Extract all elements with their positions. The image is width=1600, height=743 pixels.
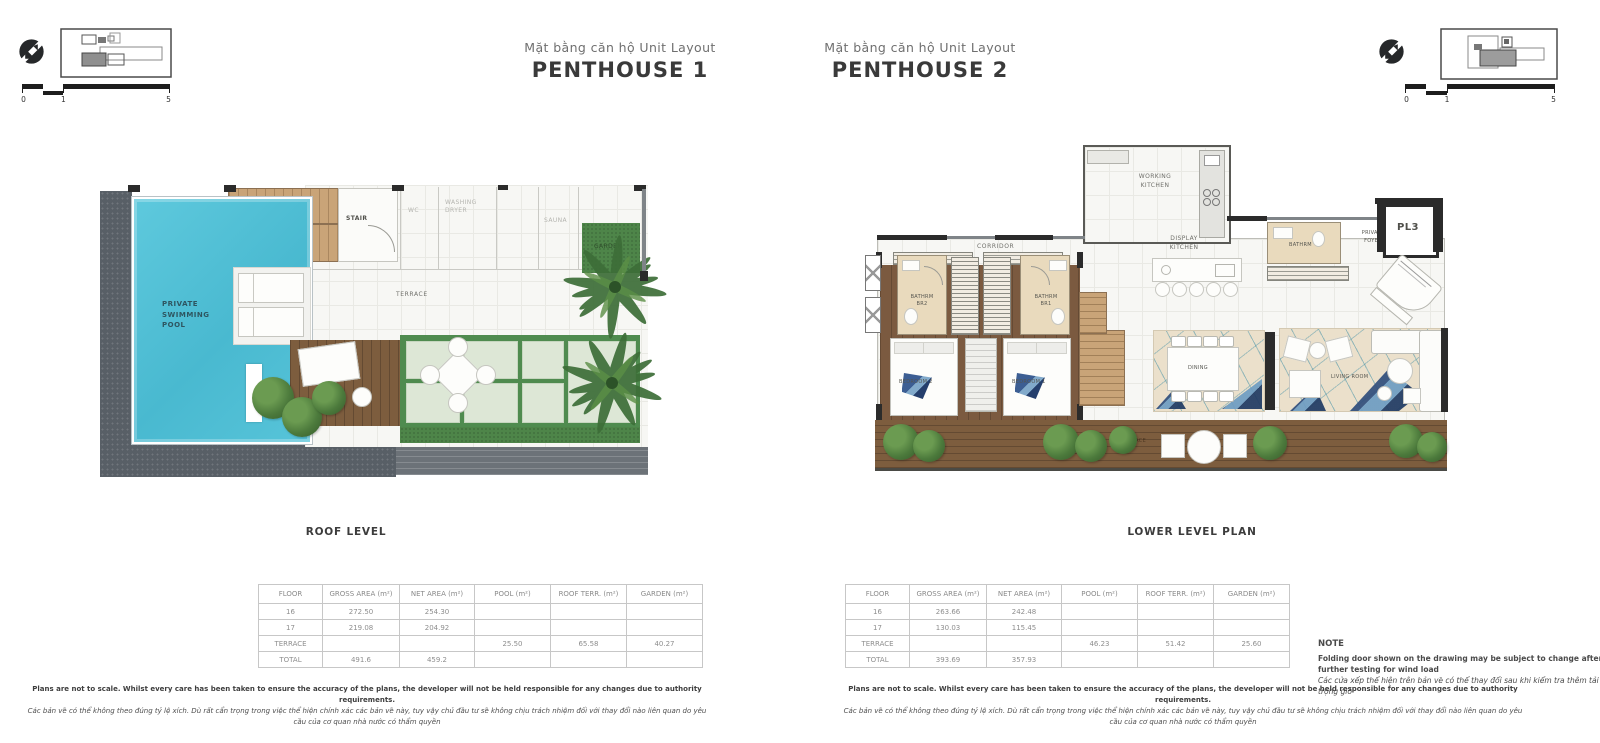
kitchen-sink	[1204, 155, 1220, 166]
deck-stool	[1161, 434, 1185, 458]
north-arrow-icon	[1378, 38, 1405, 65]
scale-label-5: 5	[166, 95, 171, 104]
table-row: 17130.03115.45	[846, 620, 1290, 636]
stove-icon	[1203, 189, 1219, 205]
side-table	[1403, 388, 1421, 404]
sofa	[1419, 330, 1443, 412]
page-title: PENTHOUSE 1	[470, 58, 770, 82]
bush	[312, 381, 346, 415]
bush	[1075, 430, 1107, 462]
bush	[1043, 424, 1079, 460]
column-header: GARDEN (m²)	[1214, 585, 1290, 604]
column-header: NET AREA (m²)	[987, 585, 1062, 604]
plan1-caption: ROOF LEVEL	[236, 526, 456, 538]
bed: BEDROOM 1	[1003, 338, 1071, 416]
bedroom-divider-wardrobe	[965, 338, 997, 412]
table-row: TERRACE25.5065.5840.27	[259, 636, 703, 652]
dining-chair	[1171, 391, 1186, 402]
unit-layout-subtitle: Mặt bằng căn hộ Unit Layout	[470, 40, 770, 55]
stair	[1079, 330, 1125, 406]
table-row: TOTAL491.6459.2	[259, 652, 703, 668]
working-kitchen-label: WORKING KITCHEN	[1133, 172, 1177, 190]
page-title: PENTHOUSE 2	[770, 58, 1070, 82]
penthouse2-area-table: FLOORGROSS AREA (m²)NET AREA (m²)POOL (m…	[845, 584, 1290, 668]
dining-chair	[1219, 336, 1234, 347]
table-row: 17219.08204.92	[259, 620, 703, 636]
wardrobe	[951, 257, 979, 335]
display-kitchen-label: DISPLAY KITCHEN	[1161, 234, 1207, 252]
deck-table	[1187, 430, 1221, 464]
column-header: FLOOR	[846, 585, 910, 604]
tv-wall	[1265, 332, 1275, 410]
scale-label-1: 1	[1445, 95, 1450, 104]
note-text-en: Folding door shown on the drawing may be…	[1318, 654, 1600, 676]
outdoor-chair	[476, 365, 496, 385]
toilet	[904, 308, 918, 325]
coffee-table	[1387, 358, 1413, 384]
penthouse2-floor-plan: WORKING KITCHEN DISPLAY KITCHEN CORRIDOR…	[865, 142, 1450, 472]
key-plan-left	[60, 28, 172, 78]
side-table	[1377, 386, 1392, 401]
sink	[1273, 227, 1293, 239]
dining-chair	[1203, 336, 1218, 347]
column-header: GROSS AREA (m²)	[323, 585, 400, 604]
terrace-label: TERRACE	[396, 291, 428, 298]
note-title: NOTE	[1318, 638, 1600, 650]
key-plan-right	[1440, 28, 1558, 80]
table-row: 16263.66242.48	[846, 604, 1290, 620]
bar-stool	[1189, 282, 1204, 297]
door-swing	[924, 266, 943, 285]
column-header: POOL (m²)	[1062, 585, 1138, 604]
column-header: ROOF TERR. (m²)	[1138, 585, 1214, 604]
dining-chair	[1219, 391, 1234, 402]
penthouse1-title-block: Mặt bằng căn hộ Unit Layout PENTHOUSE 1	[470, 40, 770, 82]
table-row: TOTAL393.69357.93	[846, 652, 1290, 668]
living-room-label: LIVING ROOM	[1331, 374, 1368, 380]
column-header: POOL (m²)	[475, 585, 551, 604]
table-row: TERRACE46.2351.4225.60	[846, 636, 1290, 652]
disclaimer-en: Plans are not to scale. Whilst every car…	[22, 684, 712, 706]
bedroom1-label: BEDROOM 1	[1012, 379, 1046, 385]
palm-tree-icon	[552, 323, 672, 443]
column-header: NET AREA (m²)	[400, 585, 475, 604]
scale-label-5: 5	[1551, 95, 1556, 104]
dining-table: DINING	[1167, 347, 1239, 391]
disclaimer-vi: Các bản vẽ có thể không theo đúng tỷ lệ …	[22, 706, 712, 728]
pool-label: PRIVATE SWIMMING POOL	[162, 299, 232, 331]
toilet	[1312, 231, 1325, 247]
sauna-label: SAUNA	[544, 217, 567, 224]
lounge-chair	[238, 273, 304, 303]
corridor-label: CORRIDOR	[977, 243, 1014, 250]
bathroom-br1-label: BATHRM BR1	[1031, 294, 1061, 308]
side-table	[1309, 342, 1326, 359]
ottoman	[1289, 370, 1321, 398]
penthouse1-area-table: FLOORGROSS AREA (m²)NET AREA (m²)POOL (m…	[258, 584, 703, 668]
disclaimer-right: Plans are not to scale. Whilst every car…	[838, 684, 1528, 727]
column-header: GARDEN (m²)	[627, 585, 703, 604]
toilet	[1051, 308, 1065, 325]
outdoor-chair	[448, 393, 468, 413]
disclaimer-vi: Các bản vẽ có thể không theo đúng tỷ lệ …	[838, 706, 1528, 728]
bathroom-br2-label: BATHRM BR2	[907, 294, 937, 308]
bar-stool	[1172, 282, 1187, 297]
table-row: 16272.50254.30	[259, 604, 703, 620]
bar-stool	[1155, 282, 1170, 297]
wc-label: WC	[408, 207, 419, 214]
north-arrow-icon	[18, 38, 45, 65]
kitchen-counter	[1199, 150, 1225, 238]
dining-chair	[1171, 336, 1186, 347]
plan2-caption: LOWER LEVEL PLAN	[1082, 526, 1302, 538]
elevator-label: PL3	[1397, 222, 1419, 233]
scale-bar-left: 0 1 5	[22, 84, 170, 106]
bathroom-label: BATHRM	[1289, 242, 1312, 248]
unit-layout-subtitle: Mặt bằng căn hộ Unit Layout	[770, 40, 1070, 55]
bar-stool	[1206, 282, 1221, 297]
dining-chair	[1203, 391, 1218, 402]
sink	[1049, 260, 1067, 271]
sink	[902, 260, 920, 271]
disclaimer-en: Plans are not to scale. Whilst every car…	[838, 684, 1528, 706]
stair-label: STAIR	[346, 215, 367, 222]
penthouse2-title-block: Mặt bằng căn hộ Unit Layout PENTHOUSE 2	[770, 40, 1070, 82]
lounge-chair	[238, 307, 304, 337]
dining-chair	[1187, 391, 1202, 402]
bush	[913, 430, 945, 462]
bush	[1109, 426, 1137, 454]
washing-dryer-label: WASHING DRYER	[445, 199, 485, 216]
side-table	[352, 387, 372, 407]
bush	[1417, 432, 1447, 462]
wardrobe	[1267, 266, 1349, 281]
stone-deck	[396, 445, 648, 475]
elevator-pl3: PL3	[1383, 204, 1439, 258]
dining-label: DINING	[1188, 365, 1208, 371]
penthouse1-floor-plan: WC WASHING DRYER SAUNA GARDEN STAIR PRIV…	[100, 185, 660, 480]
scale-label-1: 1	[61, 95, 66, 104]
bar-stool	[1223, 282, 1238, 297]
wardrobe	[983, 257, 1011, 335]
bedroom2-label: BEDROOM 2	[899, 379, 933, 385]
bed: BEDROOM 2	[890, 338, 958, 416]
door-swing	[1031, 266, 1050, 285]
deck-stool	[1223, 434, 1247, 458]
outdoor-chair	[448, 337, 468, 357]
kitchen-counter	[1087, 150, 1129, 164]
column-header: GROSS AREA (m²)	[910, 585, 987, 604]
column-header: ROOF TERR. (m²)	[551, 585, 627, 604]
scale-label-0: 0	[21, 95, 26, 104]
dining-chair	[1187, 336, 1202, 347]
kitchen-island	[1152, 258, 1242, 282]
scale-label-0: 0	[1404, 95, 1409, 104]
bush	[1253, 426, 1287, 460]
outdoor-sofa	[298, 341, 361, 387]
ac-ledge	[865, 255, 881, 291]
stair	[1079, 292, 1107, 334]
disclaimer-left: Plans are not to scale. Whilst every car…	[22, 684, 712, 727]
column-header: FLOOR	[259, 585, 323, 604]
outdoor-chair	[420, 365, 440, 385]
scale-bar-right: 0 1 5	[1405, 84, 1555, 106]
ac-ledge	[865, 297, 881, 333]
